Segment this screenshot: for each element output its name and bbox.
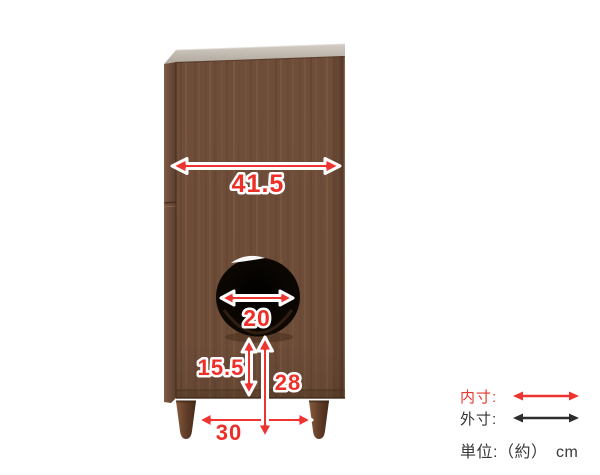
leg-span-label: 30 [216,420,242,445]
cabinet-left-side-edge [164,62,176,403]
cabinet-leg-left [176,401,196,439]
unit-label: 単位:（約） cm [460,438,600,462]
inner-dimension-label: 内寸: [460,386,512,407]
hole-to-base-label: 15.5 [198,355,245,380]
top-width-label: 41.5 [232,170,285,198]
legend-outer-row: 外寸: [460,407,600,429]
outer-dimension-arrow-icon [512,412,580,424]
hole-diameter-label: 20 [243,305,271,331]
outer-dimension-label: 外寸: [460,408,512,429]
inner-dimension-arrow-icon [512,390,580,402]
product-dimension-diagram: 41.5 20 15.5 28 30 内寸: 外寸: 単位:（約） cm [0,0,600,475]
legend-inner-row: 内寸: [460,385,600,407]
legend: 内寸: 外寸: 単位:（約） cm [460,385,600,462]
hole-to-floor-label: 28 [275,370,301,395]
